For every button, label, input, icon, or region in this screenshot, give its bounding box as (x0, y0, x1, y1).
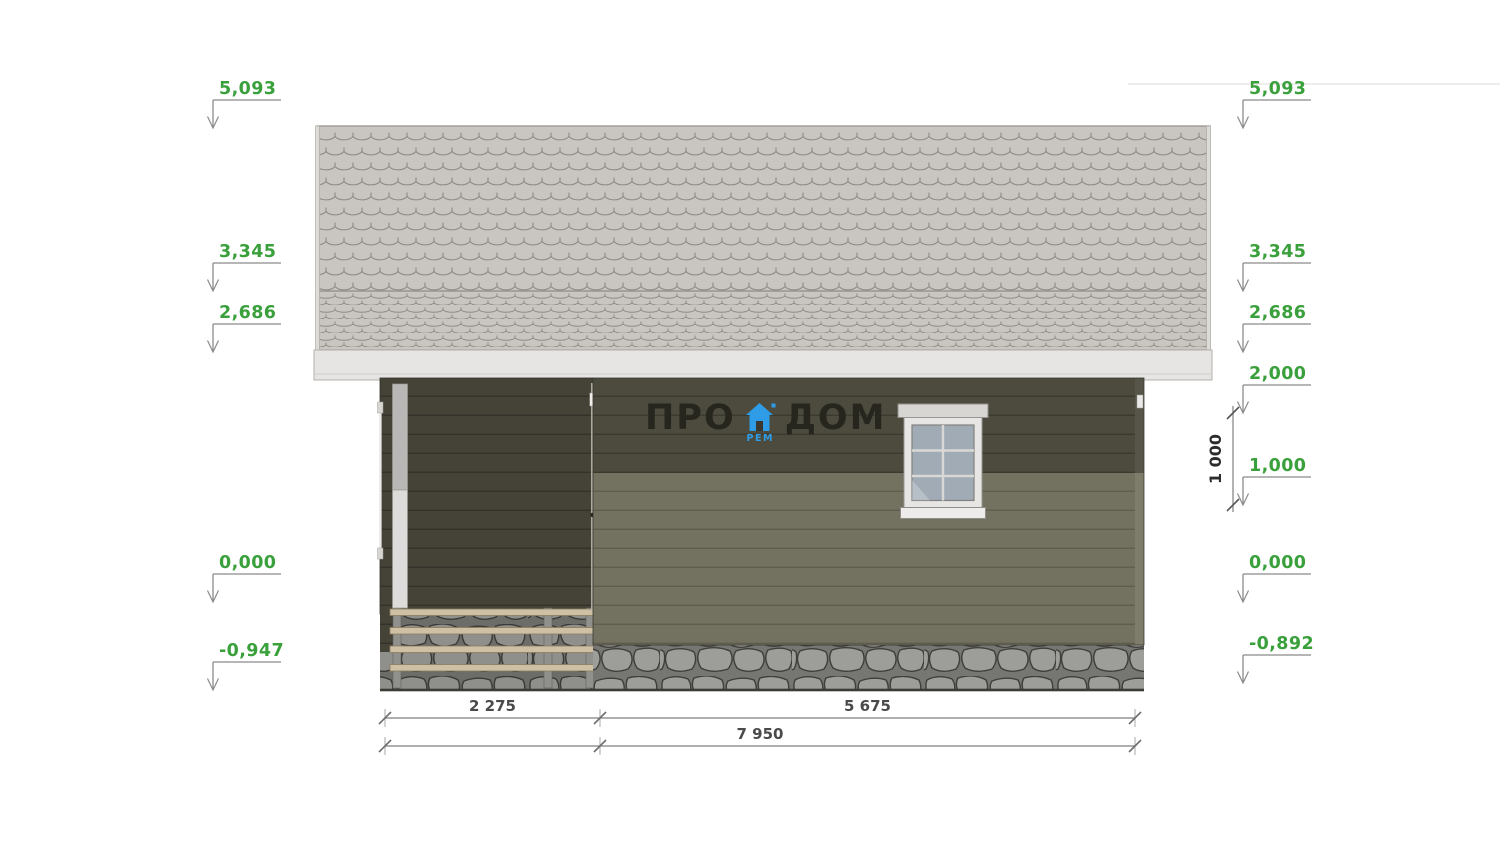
level-label: 5,093 (219, 80, 276, 99)
level-label: 3,345 (219, 243, 276, 262)
level-marker-left: 2,686 (203, 304, 295, 354)
level-marker-right: 1,000 (1233, 457, 1325, 507)
level-label: 1,000 (1249, 457, 1306, 476)
level-marker-right: 3,345 (1233, 243, 1325, 293)
level-marker-left: 0,000 (203, 554, 295, 604)
level-label: -0,947 (219, 642, 284, 661)
level-label: -0,892 (1249, 635, 1314, 654)
level-label: 2,000 (1249, 365, 1306, 384)
elevation-canvas: 2 2755 6757 9501 000 5,0933,3452,6860,00… (0, 0, 1500, 849)
level-marker-left: -0,947 (203, 642, 295, 692)
level-label: 0,000 (219, 554, 276, 573)
level-marker-right: 0,000 (1233, 554, 1325, 604)
level-label: 2,686 (1249, 304, 1306, 323)
level-marker-right: 5,093 (1233, 80, 1325, 130)
level-label: 5,093 (1249, 80, 1306, 99)
level-label: 0,000 (1249, 554, 1306, 573)
level-label: 3,345 (1249, 243, 1306, 262)
level-marker-right: 2,686 (1233, 304, 1325, 354)
level-marker-left: 3,345 (203, 243, 295, 293)
level-label: 2,686 (219, 304, 276, 323)
level-marker-right: 2,000 (1233, 365, 1325, 415)
level-marker-left: 5,093 (203, 80, 295, 130)
level-marker-layer: 5,0933,3452,6860,000-0,9475,0933,3452,68… (0, 0, 1500, 849)
level-marker-right: -0,892 (1233, 635, 1325, 685)
